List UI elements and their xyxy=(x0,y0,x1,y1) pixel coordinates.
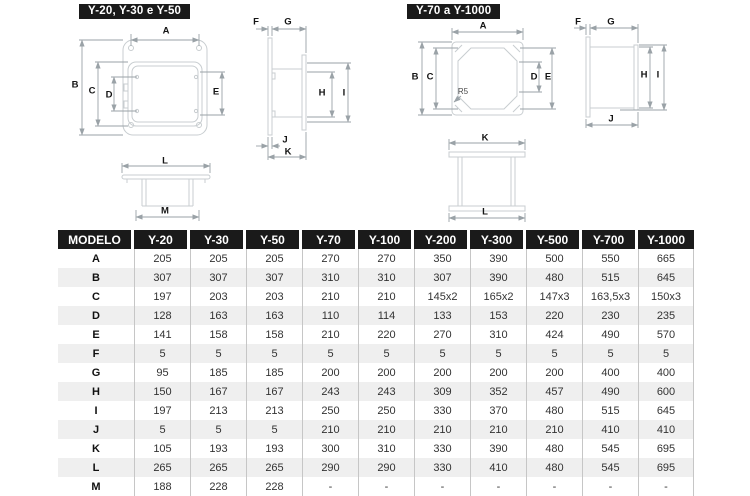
table-header: MODELOY-20Y-30Y-50Y-70Y-100Y-200Y-300Y-5… xyxy=(58,230,694,249)
drawings-area: Y-20, Y-30 e Y-50 Y-70 a Y-1000 A B C D … xyxy=(0,0,750,228)
value-cell: 105 xyxy=(134,439,190,458)
value-cell: - xyxy=(470,477,526,496)
row-label: E xyxy=(58,325,134,344)
value-cell: 147x3 xyxy=(526,287,582,306)
value-cell: 213 xyxy=(190,401,246,420)
value-cell: 205 xyxy=(190,249,246,268)
left-diagram-title: Y-20, Y-30 e Y-50 xyxy=(79,4,190,19)
value-cell: - xyxy=(302,477,358,496)
value-cell: 158 xyxy=(190,325,246,344)
value-cell: 645 xyxy=(638,401,694,420)
value-cell: 210 xyxy=(358,287,414,306)
value-cell: 200 xyxy=(302,363,358,382)
value-cell: - xyxy=(526,477,582,496)
value-cell: 410 xyxy=(582,420,638,439)
value-cell: 515 xyxy=(582,401,638,420)
value-cell: 213 xyxy=(246,401,302,420)
dim-label-left-d: D xyxy=(106,90,113,100)
value-cell: 5 xyxy=(246,420,302,439)
row-label: F xyxy=(58,344,134,363)
dim-label-right-l: L xyxy=(482,207,488,217)
value-cell: 141 xyxy=(134,325,190,344)
value-cell: 457 xyxy=(526,382,582,401)
table-row: B307307307310310307390480515645 xyxy=(58,268,694,287)
value-cell: 424 xyxy=(526,325,582,344)
value-cell: 5 xyxy=(358,344,414,363)
value-cell: 270 xyxy=(358,249,414,268)
value-cell: 480 xyxy=(526,458,582,477)
dim-label-right-i: I xyxy=(657,70,660,80)
spec-sheet: Y-20, Y-30 e Y-50 Y-70 a Y-1000 A B C D … xyxy=(0,0,750,496)
column-header: Y-70 xyxy=(302,230,358,249)
value-cell: 185 xyxy=(246,363,302,382)
value-cell: 5 xyxy=(414,344,470,363)
value-cell: 228 xyxy=(190,477,246,496)
value-cell: 300 xyxy=(302,439,358,458)
row-label: L xyxy=(58,458,134,477)
value-cell: 480 xyxy=(526,268,582,287)
dim-label-left-i: I xyxy=(343,88,346,98)
value-cell: 490 xyxy=(582,382,638,401)
value-cell: 158 xyxy=(246,325,302,344)
column-header: Y-700 xyxy=(582,230,638,249)
table-row: K105193193300310330390480545695 xyxy=(58,439,694,458)
value-cell: - xyxy=(414,477,470,496)
value-cell: 200 xyxy=(526,363,582,382)
value-cell: 310 xyxy=(358,439,414,458)
dim-label-right-h: H xyxy=(641,70,648,80)
value-cell: 5 xyxy=(134,344,190,363)
right-side-view xyxy=(574,24,667,128)
dim-label-right-f: F xyxy=(575,17,581,27)
value-cell: 210 xyxy=(358,420,414,439)
value-cell: 515 xyxy=(582,268,638,287)
row-label: B xyxy=(58,268,134,287)
value-cell: 165x2 xyxy=(470,287,526,306)
value-cell: 309 xyxy=(414,382,470,401)
value-cell: 243 xyxy=(358,382,414,401)
dim-label-left-e: E xyxy=(213,87,219,97)
dim-label-left-f: F xyxy=(253,17,259,27)
value-cell: 210 xyxy=(470,420,526,439)
value-cell: 310 xyxy=(302,268,358,287)
dim-label-left-l: L xyxy=(162,156,168,166)
value-cell: 330 xyxy=(414,401,470,420)
table-row: H150167167243243309352457490600 xyxy=(58,382,694,401)
table-row: G95185185200200200200200400400 xyxy=(58,363,694,382)
left-front-view xyxy=(79,34,225,135)
row-label: H xyxy=(58,382,134,401)
value-cell: 150x3 xyxy=(638,287,694,306)
value-cell: 290 xyxy=(302,458,358,477)
value-cell: 645 xyxy=(638,268,694,287)
value-cell: 290 xyxy=(358,458,414,477)
row-label: A xyxy=(58,249,134,268)
value-cell: 480 xyxy=(526,439,582,458)
column-header: Y-300 xyxy=(470,230,526,249)
value-cell: 500 xyxy=(526,249,582,268)
value-cell: 188 xyxy=(134,477,190,496)
column-header: Y-200 xyxy=(414,230,470,249)
dim-label-right-a: A xyxy=(480,21,487,31)
value-cell: 167 xyxy=(190,382,246,401)
row-label: K xyxy=(58,439,134,458)
value-cell: 5 xyxy=(302,344,358,363)
value-cell: 200 xyxy=(470,363,526,382)
value-cell: 114 xyxy=(358,306,414,325)
dimensions-table: MODELOY-20Y-30Y-50Y-70Y-100Y-200Y-300Y-5… xyxy=(58,230,694,496)
value-cell: 228 xyxy=(246,477,302,496)
value-cell: 400 xyxy=(582,363,638,382)
value-cell: 250 xyxy=(302,401,358,420)
value-cell: 570 xyxy=(638,325,694,344)
row-label: J xyxy=(58,420,134,439)
value-cell: 350 xyxy=(414,249,470,268)
value-cell: 390 xyxy=(470,268,526,287)
value-cell: 230 xyxy=(582,306,638,325)
technical-drawing xyxy=(0,0,750,228)
dim-label-left-k: K xyxy=(285,147,292,157)
row-label: G xyxy=(58,363,134,382)
value-cell: 330 xyxy=(414,439,470,458)
value-cell: 200 xyxy=(414,363,470,382)
value-cell: 265 xyxy=(134,458,190,477)
column-header: Y-100 xyxy=(358,230,414,249)
value-cell: 163,5x3 xyxy=(582,287,638,306)
value-cell: 695 xyxy=(638,439,694,458)
dim-label-left-c: C xyxy=(89,86,96,96)
table-row: I197213213250250330370480515645 xyxy=(58,401,694,420)
value-cell: 390 xyxy=(470,249,526,268)
value-cell: 600 xyxy=(638,382,694,401)
dim-label-right-b: B xyxy=(412,72,419,82)
value-cell: 307 xyxy=(246,268,302,287)
value-cell: - xyxy=(358,477,414,496)
value-cell: 197 xyxy=(134,287,190,306)
value-cell: 400 xyxy=(638,363,694,382)
right-diagram-title: Y-70 a Y-1000 xyxy=(407,4,500,19)
value-cell: 5 xyxy=(526,344,582,363)
value-cell: 352 xyxy=(470,382,526,401)
value-cell: 210 xyxy=(526,420,582,439)
dim-label-right-d: D xyxy=(531,72,538,82)
table-row: F5555555555 xyxy=(58,344,694,363)
dim-label-left-h: H xyxy=(319,88,326,98)
value-cell: 265 xyxy=(190,458,246,477)
dim-label-left-a: A xyxy=(163,26,170,36)
value-cell: 307 xyxy=(190,268,246,287)
value-cell: 128 xyxy=(134,306,190,325)
value-cell: 5 xyxy=(638,344,694,363)
dim-label-left-j: J xyxy=(282,135,287,145)
value-cell: 200 xyxy=(358,363,414,382)
column-header: Y-1000 xyxy=(638,230,694,249)
value-cell: 307 xyxy=(414,268,470,287)
table-row: J555210210210210210410410 xyxy=(58,420,694,439)
dim-label-left-m: M xyxy=(161,206,169,216)
dim-label-right-g: G xyxy=(607,17,614,27)
value-cell: 197 xyxy=(134,401,190,420)
value-cell: 193 xyxy=(190,439,246,458)
value-cell: 145x2 xyxy=(414,287,470,306)
value-cell: 203 xyxy=(190,287,246,306)
column-header: Y-50 xyxy=(246,230,302,249)
value-cell: 480 xyxy=(526,401,582,420)
value-cell: 210 xyxy=(302,287,358,306)
value-cell: 210 xyxy=(414,420,470,439)
value-cell: 330 xyxy=(414,458,470,477)
value-cell: 490 xyxy=(582,325,638,344)
row-label: M xyxy=(58,477,134,496)
value-cell: 390 xyxy=(470,439,526,458)
value-cell: 235 xyxy=(638,306,694,325)
table-row: M188228228------- xyxy=(58,477,694,496)
table-row: E141158158210220270310424490570 xyxy=(58,325,694,344)
value-cell: 150 xyxy=(134,382,190,401)
value-cell: 5 xyxy=(582,344,638,363)
left-side-view xyxy=(256,26,351,160)
value-cell: 243 xyxy=(302,382,358,401)
value-cell: 410 xyxy=(638,420,694,439)
value-cell: 545 xyxy=(582,458,638,477)
value-cell: 210 xyxy=(302,325,358,344)
value-cell: 307 xyxy=(134,268,190,287)
row-label: D xyxy=(58,306,134,325)
value-cell: - xyxy=(638,477,694,496)
row-label: I xyxy=(58,401,134,420)
column-header: Y-20 xyxy=(134,230,190,249)
dim-label-right-e: E xyxy=(545,72,551,82)
value-cell: 95 xyxy=(134,363,190,382)
value-cell: 205 xyxy=(246,249,302,268)
value-cell: 270 xyxy=(302,249,358,268)
value-cell: 5 xyxy=(470,344,526,363)
value-cell: 167 xyxy=(246,382,302,401)
value-cell: 163 xyxy=(190,306,246,325)
value-cell: 310 xyxy=(358,268,414,287)
value-cell: 185 xyxy=(190,363,246,382)
dim-label-left-b: B xyxy=(72,80,79,90)
value-cell: 193 xyxy=(246,439,302,458)
value-cell: 5 xyxy=(190,420,246,439)
dim-label-right-c: C xyxy=(427,72,434,82)
table-row: A205205205270270350390500550665 xyxy=(58,249,694,268)
value-cell: 545 xyxy=(582,439,638,458)
value-cell: 210 xyxy=(302,420,358,439)
dim-label-right-j: J xyxy=(608,114,613,124)
value-cell: 153 xyxy=(470,306,526,325)
table-body: A205205205270270350390500550665B30730730… xyxy=(58,249,694,496)
value-cell: - xyxy=(582,477,638,496)
value-cell: 5 xyxy=(190,344,246,363)
value-cell: 250 xyxy=(358,401,414,420)
table-row: C197203203210210145x2165x2147x3163,5x315… xyxy=(58,287,694,306)
value-cell: 5 xyxy=(134,420,190,439)
value-cell: 265 xyxy=(246,458,302,477)
radius-note: R5 xyxy=(458,88,468,96)
table-row: D128163163110114133153220230235 xyxy=(58,306,694,325)
value-cell: 310 xyxy=(470,325,526,344)
value-cell: 665 xyxy=(638,249,694,268)
header-row: MODELOY-20Y-30Y-50Y-70Y-100Y-200Y-300Y-5… xyxy=(58,230,694,249)
value-cell: 550 xyxy=(582,249,638,268)
value-cell: 163 xyxy=(246,306,302,325)
value-cell: 5 xyxy=(246,344,302,363)
value-cell: 220 xyxy=(526,306,582,325)
value-cell: 410 xyxy=(470,458,526,477)
row-label: C xyxy=(58,287,134,306)
value-cell: 203 xyxy=(246,287,302,306)
value-cell: 133 xyxy=(414,306,470,325)
column-header: MODELO xyxy=(58,230,134,249)
value-cell: 220 xyxy=(358,325,414,344)
table-row: L265265265290290330410480545695 xyxy=(58,458,694,477)
value-cell: 695 xyxy=(638,458,694,477)
column-header: Y-500 xyxy=(526,230,582,249)
value-cell: 110 xyxy=(302,306,358,325)
value-cell: 370 xyxy=(470,401,526,420)
dim-label-right-k: K xyxy=(482,133,489,143)
dim-label-left-g: G xyxy=(284,17,291,27)
value-cell: 270 xyxy=(414,325,470,344)
value-cell: 205 xyxy=(134,249,190,268)
column-header: Y-30 xyxy=(190,230,246,249)
